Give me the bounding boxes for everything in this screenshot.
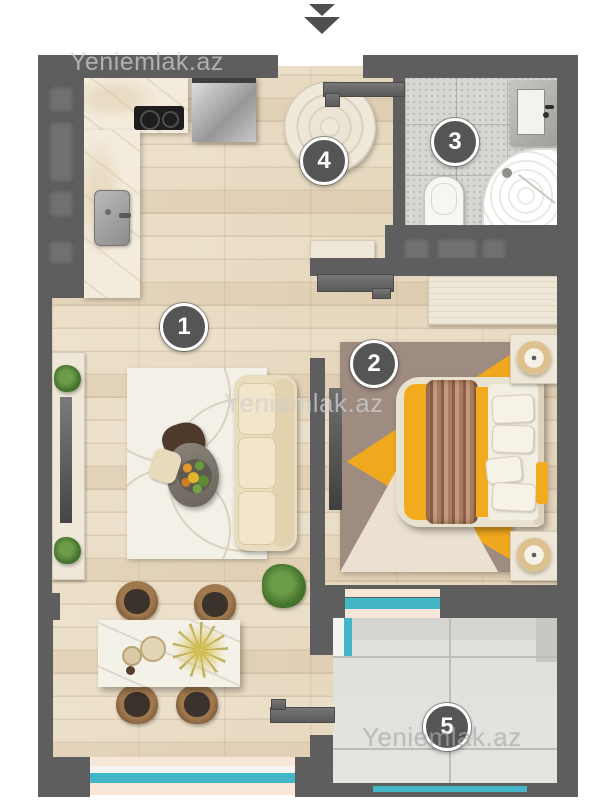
floor-plan: 1 2 3 4 5 Yeniemlak.az Yeniemlak.az Yeni… (0, 0, 600, 800)
bedroom-balcony-window (345, 589, 440, 618)
cabinet-niche (48, 190, 74, 218)
table-lamp (517, 538, 551, 572)
bed-throw-drape (426, 380, 478, 524)
potted-plant (54, 365, 81, 392)
window-sill (90, 757, 295, 766)
bed (396, 377, 544, 527)
potted-plant (54, 537, 81, 564)
watermark-text: Yeniemlak.az (362, 722, 522, 753)
cabinet-niche (48, 240, 74, 265)
window-teal-band (90, 773, 295, 783)
pillow (491, 482, 536, 512)
faucet-icon (119, 213, 131, 218)
chair-cushion (124, 589, 150, 614)
cooktop (134, 106, 184, 130)
wall (38, 757, 90, 797)
faucet-icon (543, 112, 549, 118)
living-room-window (90, 757, 295, 795)
balcony-side-window (333, 618, 353, 656)
chair-cushion (202, 592, 228, 617)
wall (38, 618, 53, 762)
window-teal-band (345, 598, 440, 609)
window-sill (90, 783, 295, 795)
sink-basin (517, 89, 545, 135)
drain (105, 209, 111, 215)
toilet-seat-line (431, 183, 457, 215)
table-plant (172, 622, 228, 678)
cup (126, 666, 135, 675)
window-sill (345, 589, 440, 597)
bed-bench-yellow (536, 462, 548, 504)
dining-chair (116, 684, 158, 724)
entrance-arrow-icon (309, 4, 335, 16)
room-label-2: 2 (350, 340, 398, 388)
burner (140, 110, 160, 130)
watermark-text: Yeniemlak.az (224, 388, 384, 419)
toilet (424, 176, 464, 230)
pillow (492, 424, 535, 453)
balcony-floor (333, 618, 557, 785)
dining-chair (116, 581, 158, 621)
floor-plant (262, 564, 306, 608)
chair-cushion (184, 692, 210, 717)
shower-door-line (518, 174, 555, 204)
entrance-arrow-icon (304, 17, 340, 34)
dresser (428, 276, 560, 325)
table-lamp (517, 341, 551, 375)
wall (38, 593, 60, 620)
window-glass (90, 766, 295, 773)
tile-seam (333, 656, 557, 658)
cabinet-niche (48, 121, 74, 183)
wall (265, 66, 278, 78)
dining-chair (194, 584, 236, 624)
pillow (485, 455, 524, 485)
dining-chair (176, 684, 218, 724)
watermark-text: Yeniemlak.az (70, 48, 224, 77)
refrigerator (192, 77, 256, 142)
room-label-1: 1 (160, 303, 208, 351)
sofa-cushion (238, 437, 276, 489)
balcony-shading (333, 618, 557, 640)
cup (140, 636, 166, 662)
flower-arrangement (176, 456, 214, 496)
sofa-cushion (238, 491, 276, 545)
room-label-3: 3 (431, 118, 479, 166)
chair-cushion (124, 692, 150, 717)
wall (38, 290, 52, 620)
wall-balcony-left (310, 735, 333, 797)
burner (162, 111, 179, 128)
window-teal-band (344, 618, 352, 656)
balcony-bottom-window (373, 786, 527, 792)
window-sill (345, 609, 440, 618)
room-label-4: 4 (300, 137, 348, 185)
wall-balcony-left (310, 618, 333, 655)
cup (122, 646, 142, 666)
bed-yellow-runner (404, 384, 428, 520)
window-glass (333, 618, 344, 656)
kitchen-sink (94, 190, 130, 246)
bathroom-vanity (510, 80, 557, 145)
shower-drain (502, 168, 512, 178)
wall (557, 55, 578, 797)
pillow (491, 394, 534, 424)
tv-living (60, 397, 72, 523)
balcony-door-handle (271, 699, 286, 710)
entrance-door-handle (325, 93, 340, 107)
faucet-icon (545, 105, 554, 109)
bedroom-door-handle (372, 288, 391, 299)
wall-bathroom-left (393, 75, 405, 228)
tile-seam (449, 618, 451, 783)
cabinet-niche (48, 86, 74, 113)
